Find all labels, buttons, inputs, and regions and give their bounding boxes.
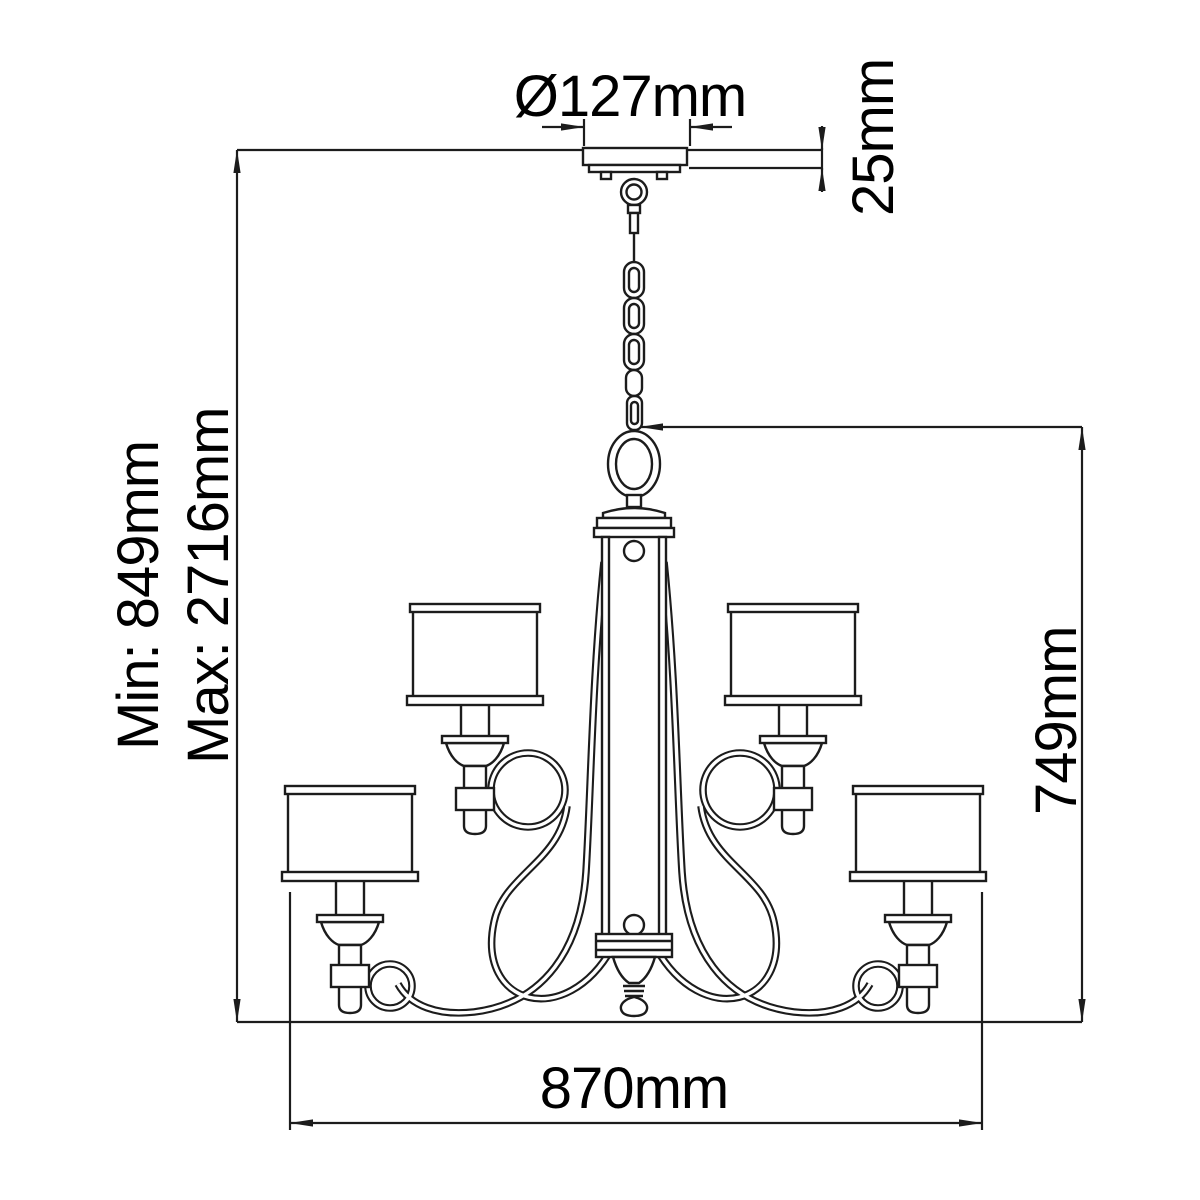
shade-lower-left (282, 786, 418, 881)
dim-label-body-height: 749mm (1024, 627, 1089, 815)
center-column (594, 495, 674, 1016)
ceiling-canopy (583, 148, 687, 179)
finial (621, 997, 647, 1016)
dim-label-overall-width: 870mm (540, 1056, 728, 1121)
dim-label-max-drop: Max: 2716mm (176, 408, 241, 764)
diagram-canvas: Ø127mm 25mm Min: 849mm Max: 2716mm 749mm… (0, 0, 1200, 1200)
shade-lower-right (850, 786, 986, 881)
bottom-hub (596, 934, 672, 957)
shade-upper-right (725, 604, 861, 705)
dim-label-canopy-height: 25mm (841, 59, 906, 216)
hanging-chain (608, 179, 660, 497)
dim-label-canopy-diameter: Ø127mm (514, 64, 747, 129)
dim-label-min-drop: Min: 849mm (106, 441, 171, 750)
chandelier-dimension-diagram: Ø127mm 25mm Min: 849mm Max: 2716mm 749mm… (0, 0, 1200, 1200)
dimension-labels: Ø127mm 25mm Min: 849mm Max: 2716mm 749mm… (106, 59, 1089, 1121)
shade-upper-left (407, 604, 543, 705)
